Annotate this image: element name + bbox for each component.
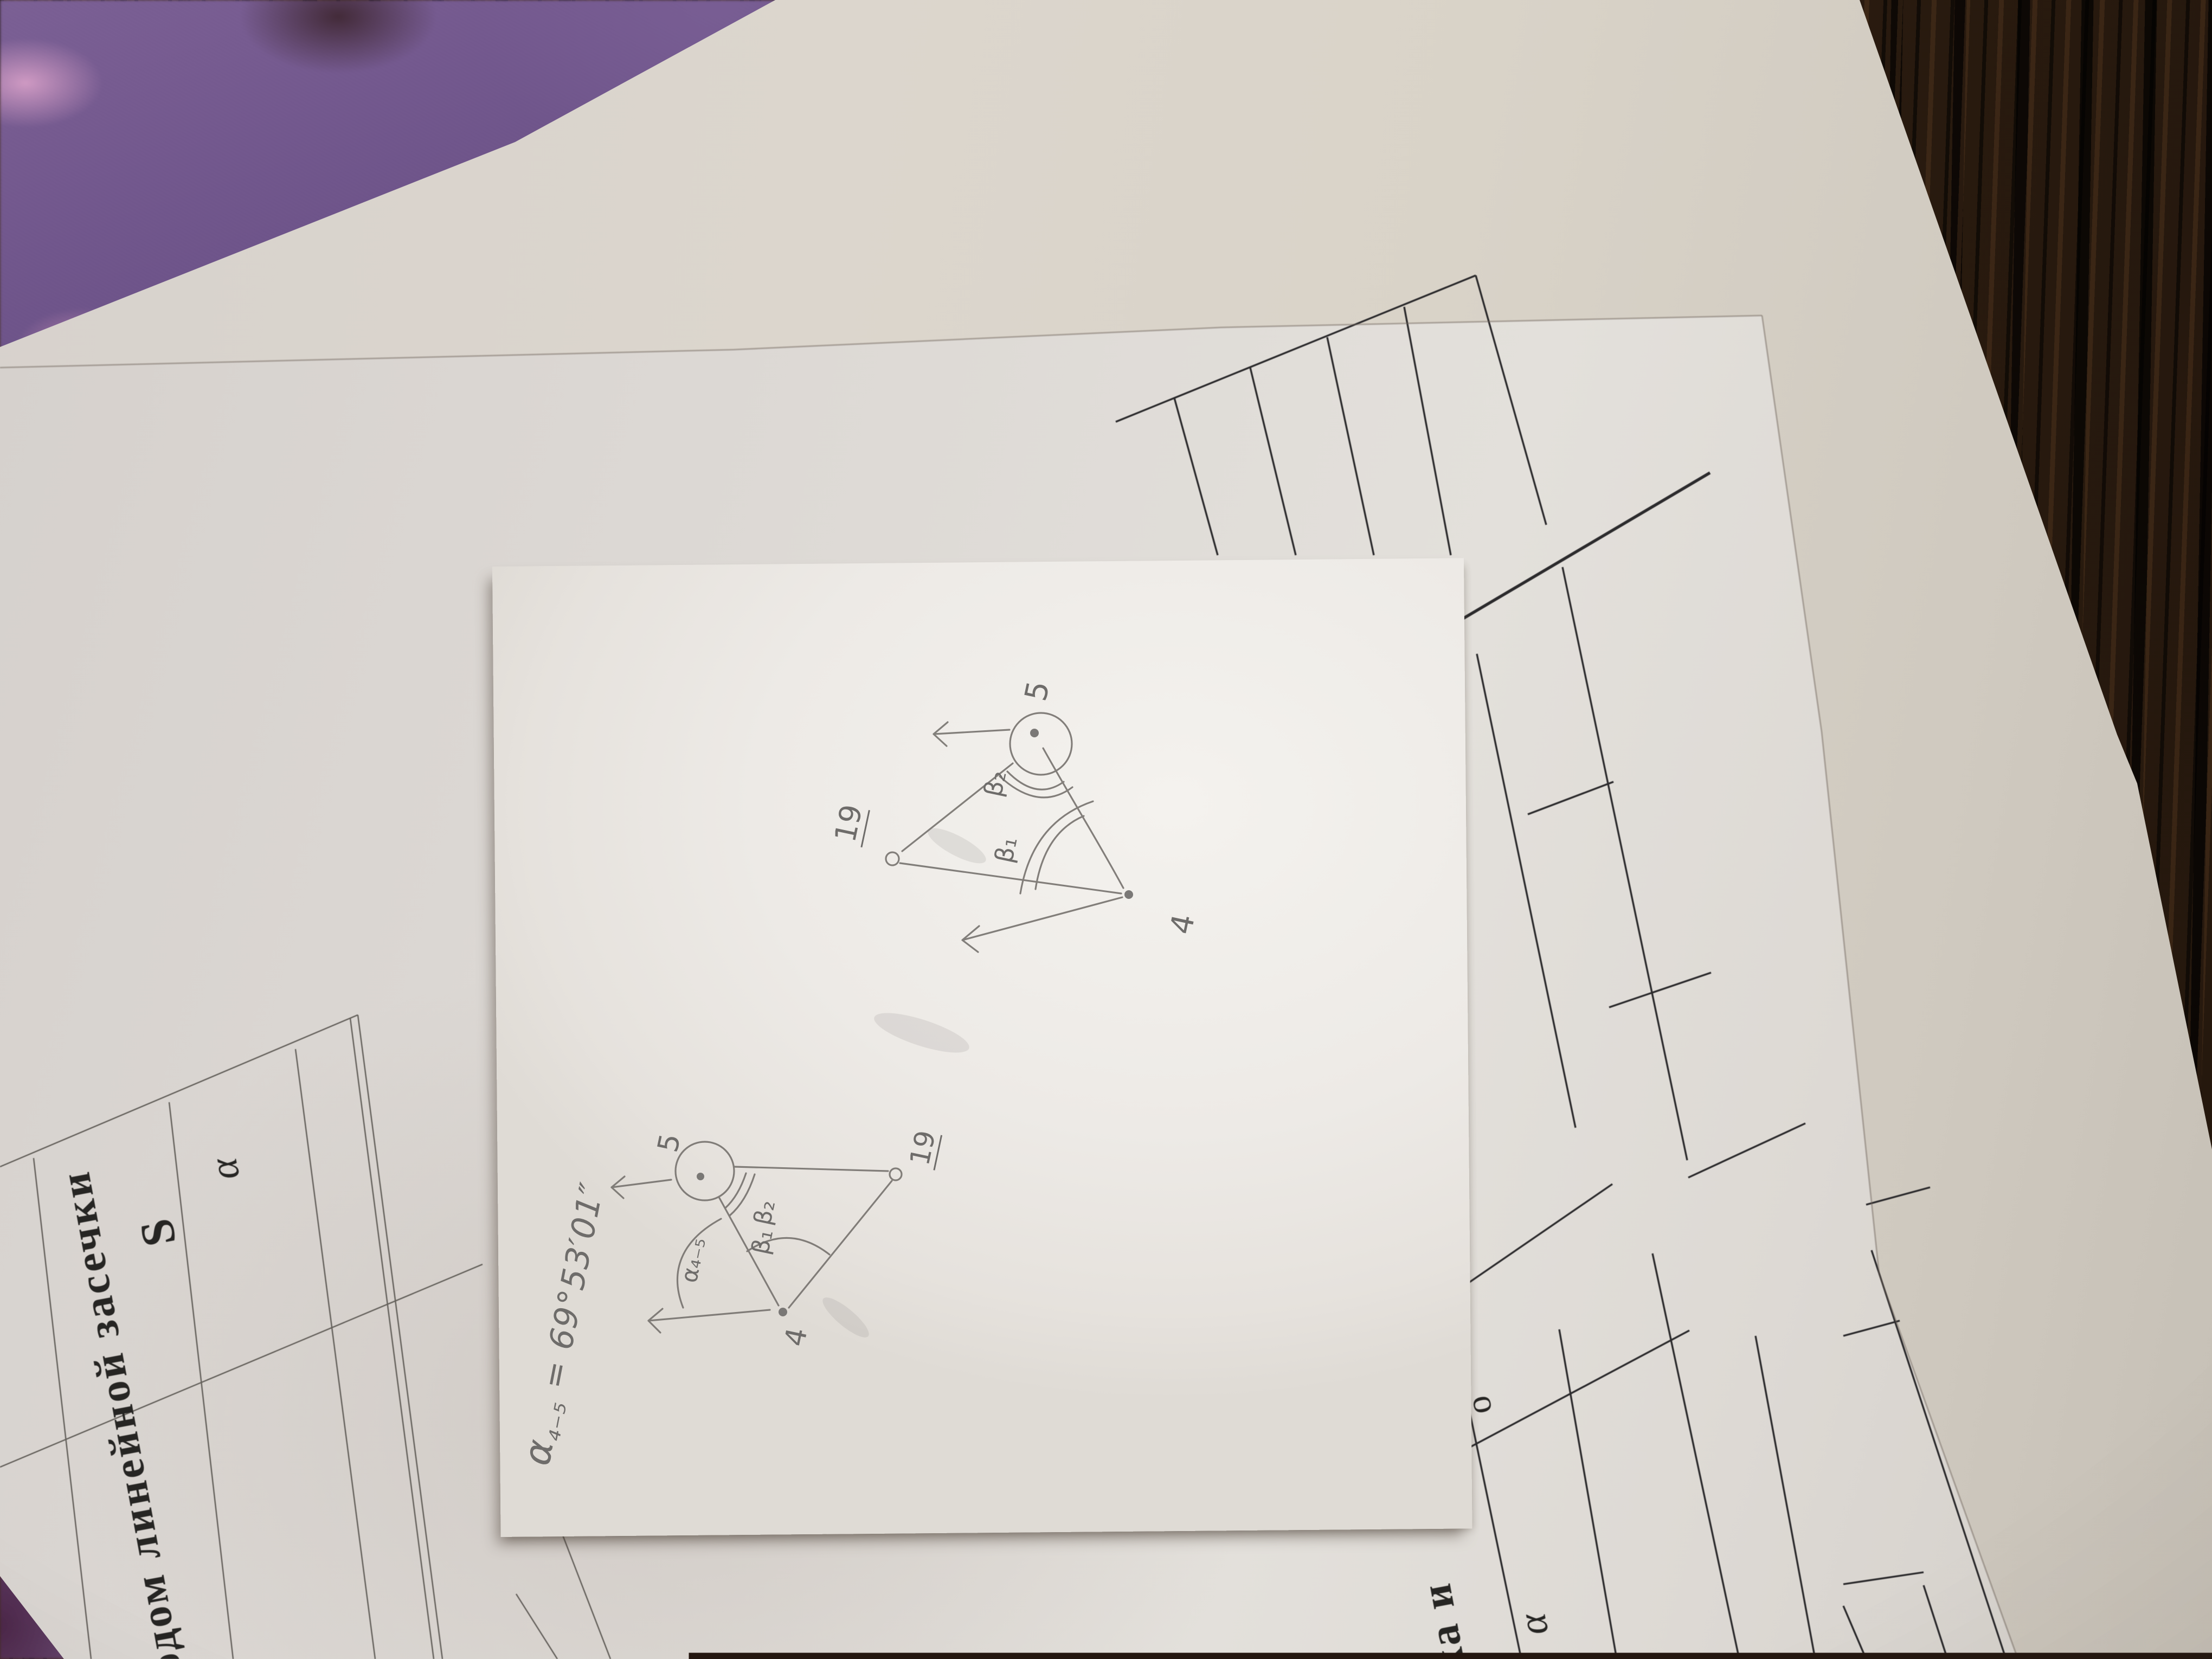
- line-5-4: [1043, 748, 1123, 888]
- north-arrow-at-4: [962, 897, 1122, 952]
- point-5-circle: [1010, 713, 1072, 775]
- point-5-dot: [1030, 729, 1039, 737]
- line-19-4: [900, 863, 1121, 893]
- north-arrow-at-5: [934, 722, 1009, 746]
- svg-text:α₄₋₅ = 69°53′01″: α₄₋₅ = 69°53′01″: [514, 1178, 616, 1470]
- point-19-dot: [890, 1168, 902, 1180]
- point-4-dot: [779, 1308, 787, 1316]
- label-4: 4: [1163, 911, 1202, 937]
- point-19-dot: [886, 852, 899, 865]
- label-5: 5: [1018, 678, 1057, 704]
- label-4: 4: [779, 1325, 814, 1349]
- sketch-large: [886, 713, 1133, 952]
- label-beta1: β₁: [747, 1227, 779, 1257]
- north-arrow-at-4: [648, 1309, 770, 1333]
- beta2-arcs: [725, 1173, 755, 1216]
- label-5: 5: [652, 1131, 687, 1155]
- pencil-layer: α₄₋₅ = 69°53′01″ 5 19 4 α₄₋₅ β₁ β₂ 5 19 …: [0, 0, 2212, 1659]
- north-arrow-at-5: [612, 1176, 671, 1198]
- photo-of-desk-with-papers: одом линейной засечки S α тка и α о Т: [0, 0, 2212, 1659]
- line-19-4: [789, 1181, 892, 1308]
- label-beta1: β₁: [989, 834, 1023, 865]
- formula: α₄₋₅ = 69°53′01″: [514, 1178, 616, 1470]
- pencil-smudges: [818, 822, 990, 1343]
- line-5-19: [734, 1167, 888, 1171]
- label-beta2: β₂: [749, 1198, 781, 1227]
- label-19: 19: [903, 1128, 942, 1170]
- point-5-dot: [697, 1173, 704, 1180]
- beta1-arc-inner: [1036, 816, 1084, 889]
- label-19: 19: [827, 801, 870, 847]
- label-beta2: β₂: [978, 768, 1012, 799]
- point-4-dot: [1124, 890, 1133, 899]
- label-alpha45: α₄₋₅: [676, 1235, 711, 1285]
- pencil-labels: α₄₋₅ = 69°53′01″ 5 19 4 α₄₋₅ β₁ β₂ 5 19 …: [514, 678, 1202, 1470]
